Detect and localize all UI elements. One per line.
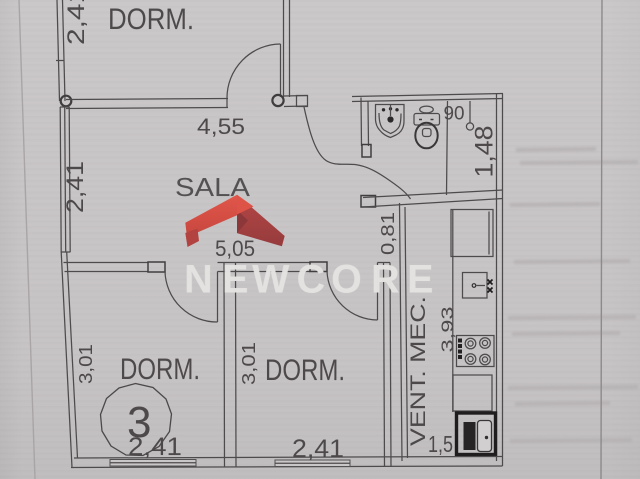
svg-text:DORM.: DORM.	[265, 354, 345, 387]
svg-text:2,41: 2,41	[128, 433, 182, 461]
svg-text:4,55: 4,55	[197, 114, 245, 139]
svg-text:O: O	[331, 257, 362, 301]
svg-text:VENT. MEC.: VENT. MEC.	[407, 296, 430, 446]
svg-text:3,01: 3,01	[76, 344, 96, 384]
svg-text:DORM.: DORM.	[120, 353, 200, 386]
svg-text:E: E	[222, 257, 248, 301]
svg-text:90: 90	[443, 104, 464, 125]
svg-text:1,48: 1,48	[471, 126, 499, 178]
svg-text:1,5: 1,5	[428, 431, 453, 457]
svg-text:R: R	[371, 257, 400, 301]
svg-text:2,41: 2,41	[62, 161, 89, 213]
svg-text:DORM.: DORM.	[108, 3, 194, 36]
svg-text:3,93: 3,93	[438, 307, 457, 353]
svg-text:3,01: 3,01	[239, 342, 259, 385]
svg-text:E: E	[407, 257, 433, 301]
svg-text:0,81: 0,81	[378, 212, 398, 255]
svg-text:2,41: 2,41	[63, 0, 90, 45]
svg-text:W: W	[252, 257, 290, 301]
svg-text:C: C	[297, 257, 326, 301]
svg-text:N: N	[184, 257, 213, 301]
svg-text:2,41: 2,41	[292, 435, 344, 463]
